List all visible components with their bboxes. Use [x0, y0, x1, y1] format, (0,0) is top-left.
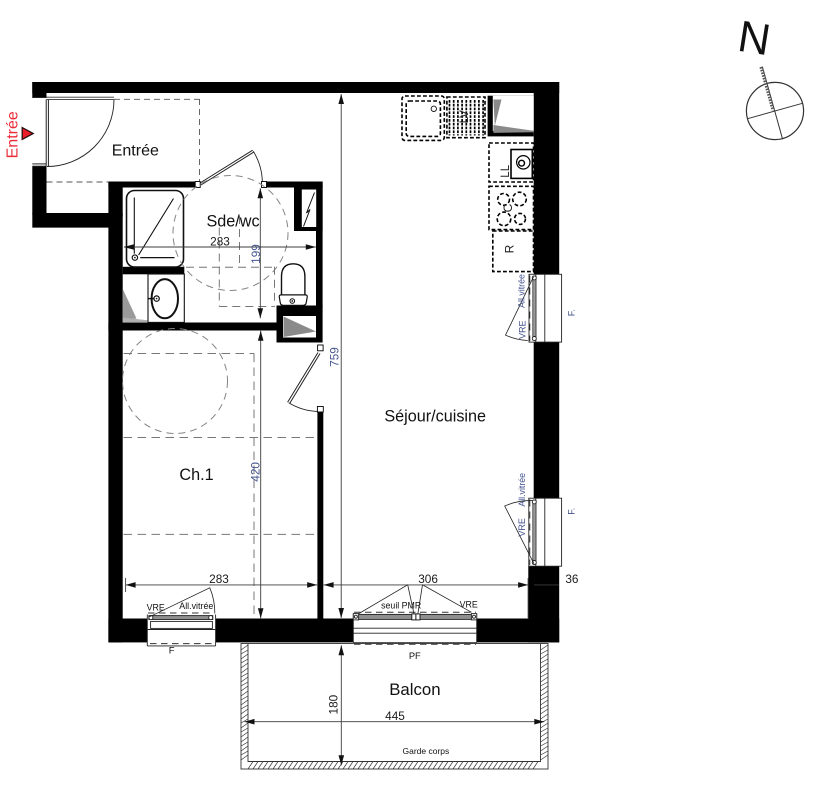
svg-text:Sde/wc: Sde/wc: [206, 213, 259, 231]
svg-text:759: 759: [327, 347, 341, 367]
svg-text:VRE: VRE: [460, 600, 478, 610]
svg-text:Entrée: Entrée: [5, 111, 22, 158]
svg-text:283: 283: [210, 235, 230, 249]
svg-text:All.vitrée: All.vitrée: [517, 274, 527, 308]
svg-text:F.: F.: [567, 309, 577, 316]
svg-text:283: 283: [209, 572, 229, 586]
svg-text:All.vitrée: All.vitrée: [517, 473, 527, 507]
svg-text:LL: LL: [500, 164, 512, 177]
svg-text:F.: F.: [566, 508, 576, 515]
svg-text:445: 445: [385, 709, 405, 723]
svg-text:F: F: [169, 645, 175, 656]
svg-text:36: 36: [565, 572, 579, 586]
svg-text:Ch.1: Ch.1: [179, 466, 213, 484]
svg-text:306: 306: [418, 572, 438, 586]
svg-text:C: C: [501, 203, 515, 212]
svg-text:seuil PMR: seuil PMR: [381, 601, 421, 611]
svg-text:LV: LV: [459, 110, 471, 124]
svg-text:Séjour/cuisine: Séjour/cuisine: [384, 407, 486, 425]
svg-text:420: 420: [249, 462, 263, 482]
svg-text:Entrée: Entrée: [112, 142, 159, 159]
svg-text:199: 199: [249, 244, 263, 264]
svg-text:Balcon: Balcon: [389, 680, 440, 699]
svg-text:VRE: VRE: [517, 518, 527, 537]
svg-text:Garde corps: Garde corps: [403, 746, 450, 756]
svg-text:VRE: VRE: [147, 602, 165, 612]
svg-text:180: 180: [327, 694, 341, 714]
svg-text:All.vitrée: All.vitrée: [179, 601, 213, 611]
svg-text:R: R: [503, 244, 517, 253]
svg-text:VRE: VRE: [518, 321, 528, 340]
svg-text:PF: PF: [409, 651, 421, 661]
